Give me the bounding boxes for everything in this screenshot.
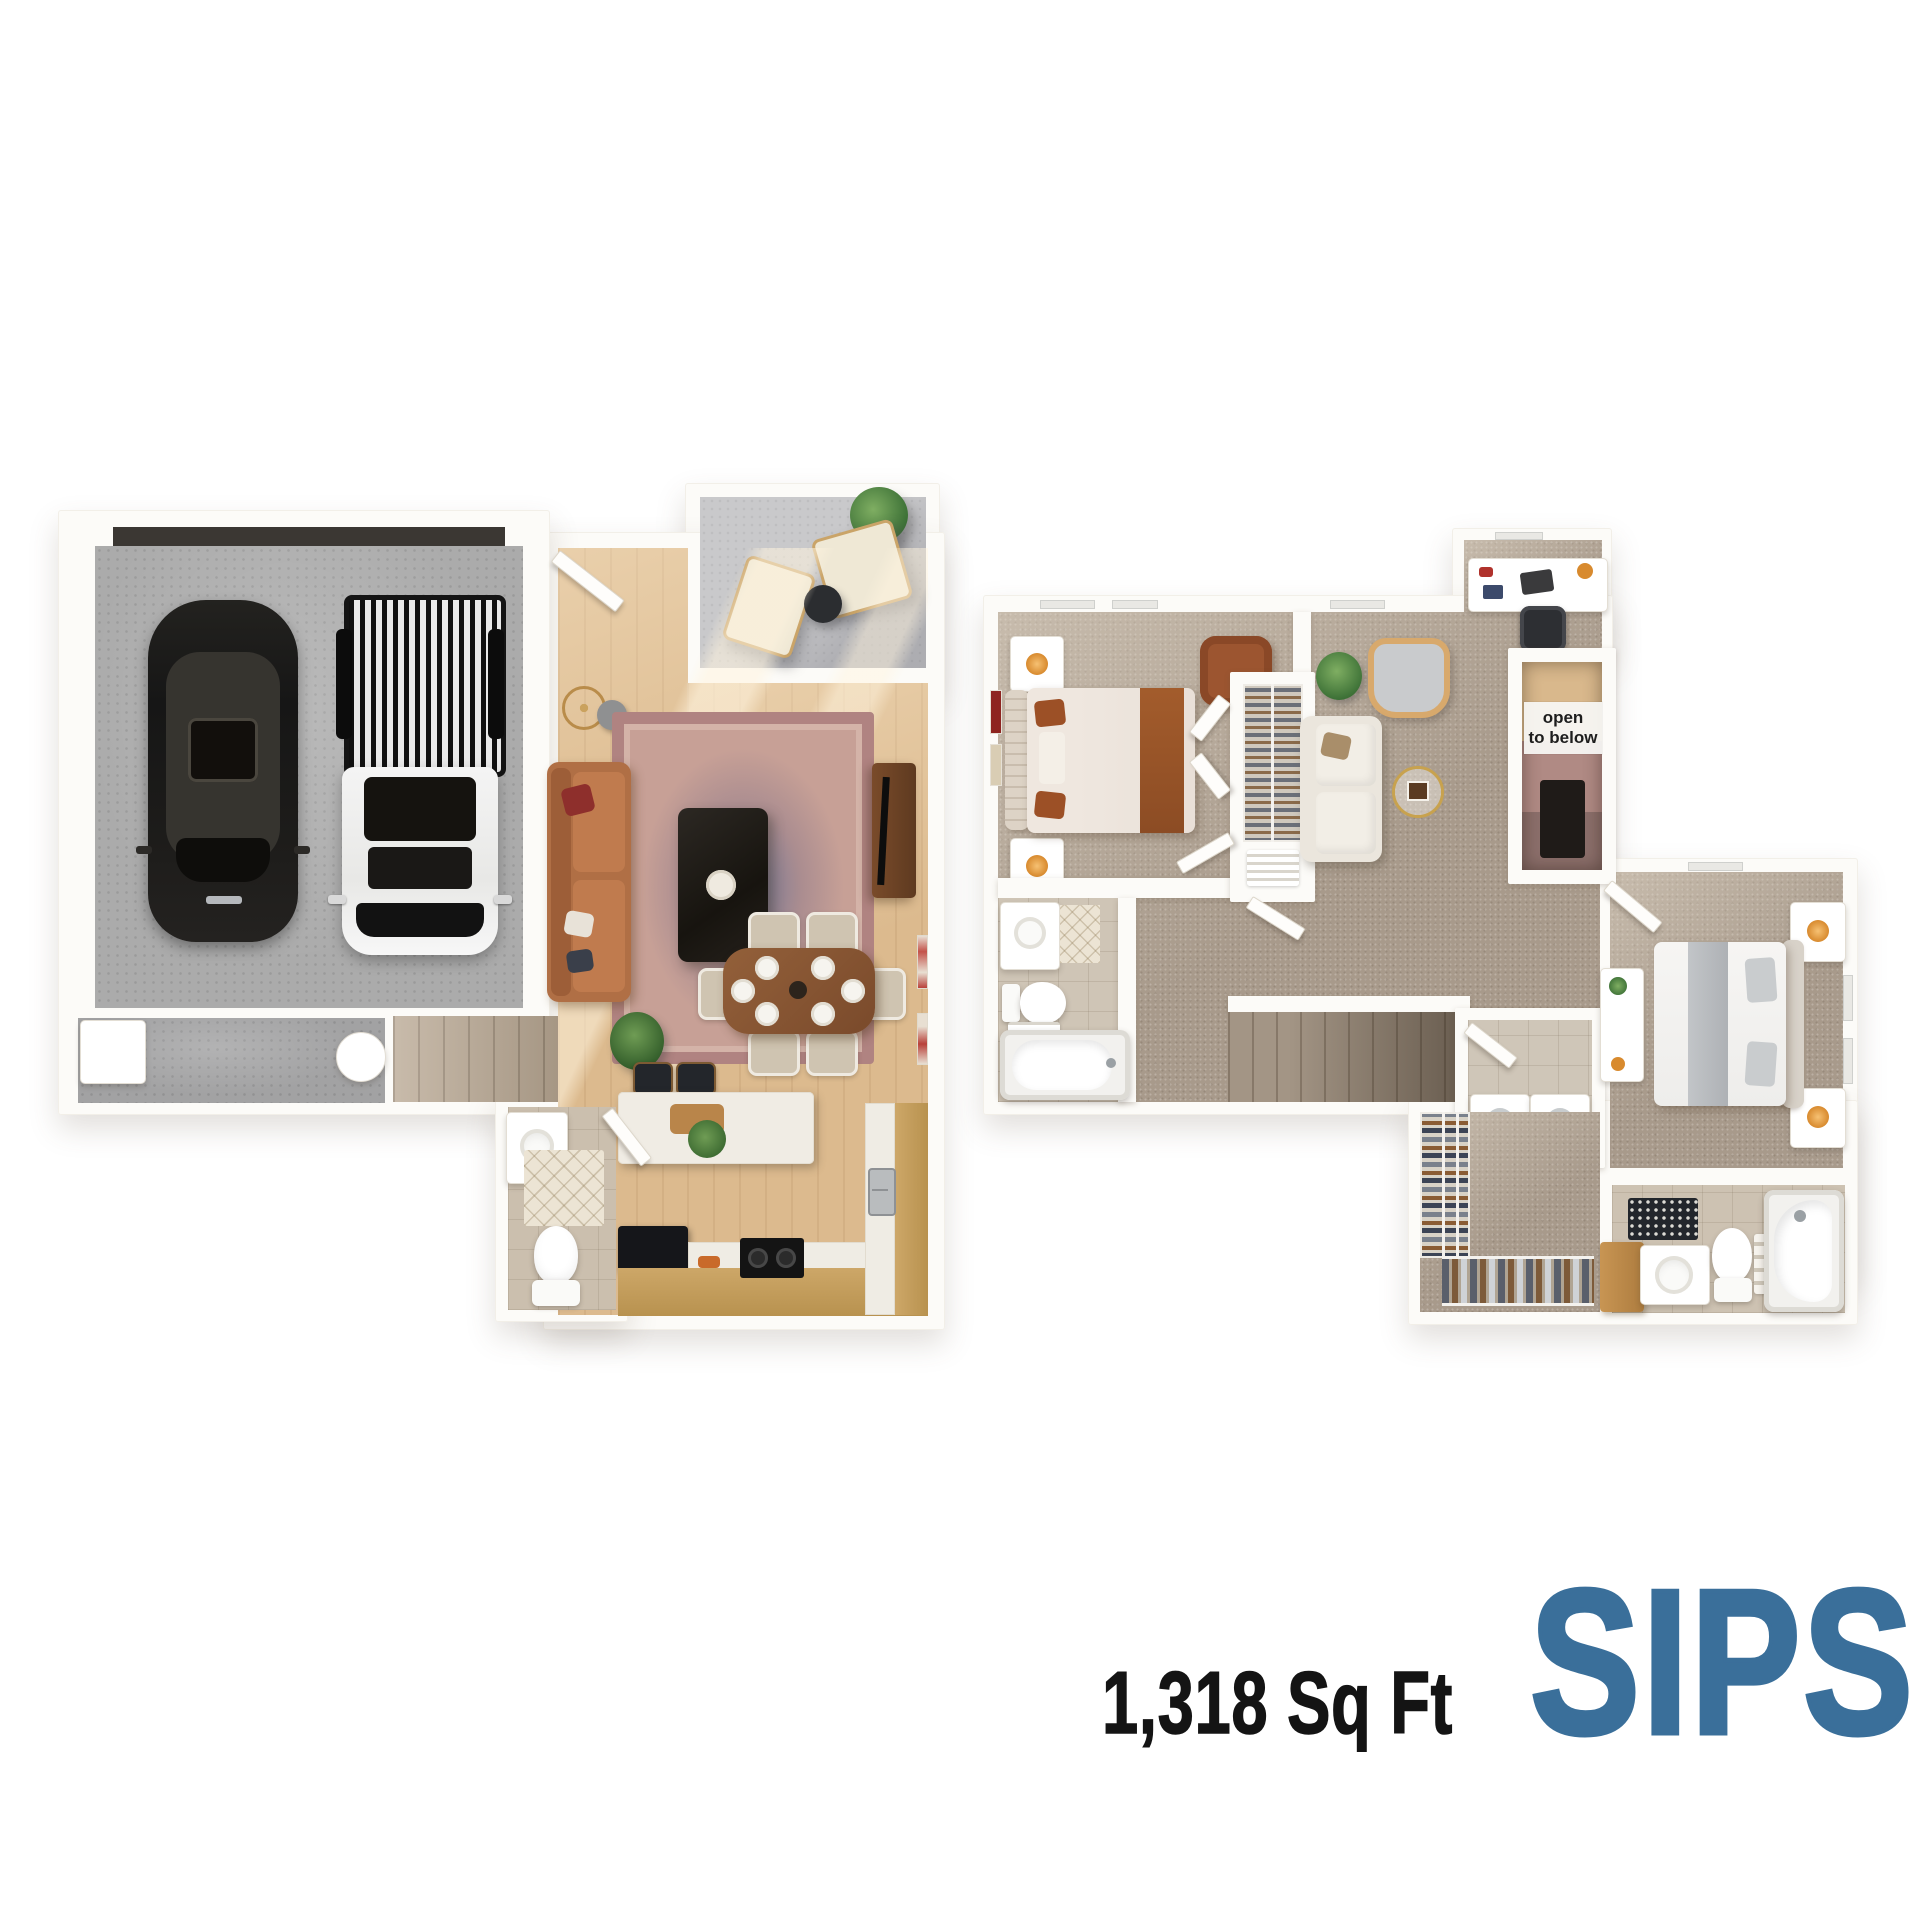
bathroom2-toilet-tank (1714, 1278, 1752, 1302)
lamp-2a (1807, 920, 1829, 942)
patio-side-table (804, 585, 842, 623)
bed2-pillow-2 (1745, 1041, 1778, 1087)
bed-1 (1005, 688, 1195, 833)
place-setting-1 (755, 956, 779, 980)
desk-lamp (1577, 563, 1593, 579)
black-car-sunroof (188, 718, 258, 782)
floorplan-page: open to below (0, 0, 1920, 1920)
desk-red-item (1479, 567, 1493, 577)
island-stool-2 (676, 1062, 716, 1096)
refrigerator (618, 1226, 688, 1272)
place-setting-2 (811, 956, 835, 980)
bathroom2-toilet-bowl (1712, 1228, 1752, 1282)
bed1-runner (1140, 688, 1184, 833)
dining-table (723, 948, 875, 1034)
truck-rear-glass (368, 847, 472, 889)
island-greens (688, 1120, 726, 1158)
black-car (148, 600, 298, 942)
bed2-pillow-1 (1745, 957, 1778, 1003)
bedroom1-wall-art-2 (990, 744, 1002, 786)
table-centerpiece (789, 981, 807, 999)
rattan-chair (1368, 638, 1450, 718)
loft-sofa (1300, 716, 1382, 862)
void-view-coffee-table (1540, 780, 1585, 858)
dark-throw-pillow (566, 948, 595, 973)
bed2-runner (1688, 942, 1728, 1106)
powder-toilet-bowl (534, 1226, 578, 1284)
place-setting-6 (841, 979, 865, 1003)
plan-name-text: SIPS (1530, 1570, 1915, 1755)
powder-toilet-tank (532, 1280, 580, 1306)
loft-gold-table (1392, 766, 1444, 818)
bed1-pillow-3 (1039, 732, 1065, 784)
black-car-windshield (176, 838, 270, 882)
kitchen-decor-orange (698, 1256, 720, 1268)
plan-title-row: 1,318 Sq Ft SIPS (1102, 1570, 1920, 1755)
truck-mirror-right (494, 895, 512, 904)
bathroom2-vanity-wood (1600, 1242, 1644, 1312)
black-car-mirror-left (136, 846, 152, 854)
loft-plant (1316, 652, 1362, 700)
bed-2 (1654, 940, 1804, 1108)
bedroom1-bottom-wall (998, 878, 1238, 898)
closet1-rod (1271, 684, 1274, 842)
bed1-pillow-2 (1034, 791, 1067, 820)
garage-door (113, 527, 505, 546)
walkin-shoe-rack (1442, 1256, 1594, 1306)
lamp-2b (1807, 1106, 1829, 1128)
powder-bath-mat (524, 1150, 604, 1226)
bathroom1-vanity (1000, 902, 1060, 970)
open-to-below-line1: open (1543, 708, 1584, 728)
stairs-second-floor (1228, 1012, 1470, 1102)
truck-sunroof (364, 777, 476, 841)
island-stool-1 (633, 1062, 673, 1096)
kitchen-sink (868, 1168, 896, 1216)
dresser-decor (1611, 1057, 1625, 1071)
truck-wheel-left (336, 629, 352, 739)
black-car-mirror-right (294, 846, 310, 854)
bathroom1-tub (1000, 1030, 1130, 1100)
bathroom2-mat (1628, 1198, 1698, 1240)
void-opening (1522, 662, 1602, 870)
walkin-rod-1 (1442, 1112, 1445, 1258)
closet1-towels (1247, 850, 1299, 886)
stove-burner-2 (776, 1248, 796, 1268)
white-throw-pillow (563, 910, 595, 938)
sink-divider (872, 1189, 888, 1191)
desk-laptop (1520, 569, 1555, 595)
wall-art-2 (917, 1013, 928, 1065)
tv-screen (877, 777, 890, 885)
desk-notebook (1483, 585, 1503, 599)
lamp-1a (1026, 653, 1048, 675)
bathroom2-shower-drain (1794, 1210, 1806, 1222)
place-setting-4 (811, 1002, 835, 1026)
bathroom2-vanity-counter (1640, 1245, 1710, 1305)
loft-table-book (1407, 781, 1429, 801)
stove (740, 1238, 804, 1278)
place-setting-5 (731, 979, 755, 1003)
loft-sofa-seat-2 (1316, 792, 1376, 854)
desk (1468, 558, 1608, 612)
bathroom2-sink (1655, 1256, 1693, 1294)
truck-bed-cover (344, 595, 506, 777)
square-footage-text: 1,318 Sq Ft (1102, 1652, 1453, 1754)
wall-art-1 (917, 935, 928, 989)
dining-chair-4 (806, 1030, 858, 1076)
coffee-table-tray (706, 870, 736, 900)
dresser-plant (1609, 977, 1627, 995)
stair-railing (1228, 996, 1470, 1012)
walkin-hanging-clothes (1420, 1112, 1470, 1258)
open-to-below-line2: to below (1529, 728, 1598, 748)
bathroom1-sink (1014, 917, 1046, 949)
open-to-below-label: open to below (1524, 702, 1602, 754)
utility-cabinet (80, 1020, 146, 1084)
leather-sofa (547, 762, 631, 1002)
kitchen-cabinets-right (895, 1103, 928, 1315)
bathroom2-tub (1764, 1190, 1844, 1312)
bedroom1-wall-art-1 (990, 690, 1002, 734)
black-car-hood-glint (206, 896, 242, 904)
truck-wheel-right (488, 629, 504, 739)
water-heater (336, 1032, 386, 1082)
bathroom1-tub-basin (1012, 1040, 1112, 1090)
walkin-rod-2 (1456, 1112, 1459, 1258)
bathroom1-mat (1060, 905, 1100, 963)
nook-window (1495, 532, 1543, 540)
bed1-headboard (1005, 690, 1029, 830)
bedroom2-dresser (1600, 968, 1644, 1082)
nightstand-1a (1010, 636, 1064, 692)
stove-burner-1 (748, 1248, 768, 1268)
loft-window (1330, 600, 1385, 609)
bedroom2-window-top (1688, 862, 1743, 871)
office-chair (1520, 606, 1566, 652)
tv-console (872, 763, 916, 898)
closet1-hanging-clothes (1243, 684, 1303, 842)
bathroom1-tub-drain (1106, 1058, 1116, 1068)
place-setting-3 (755, 1002, 779, 1026)
lamp-1b (1026, 855, 1048, 877)
bed1-pillow-1 (1034, 699, 1067, 728)
dining-chair-3 (748, 1030, 800, 1076)
bathroom1-toilet-tank (1002, 984, 1020, 1022)
bathroom1-toilet-bowl (1020, 982, 1066, 1024)
bedroom1-window-1 (1040, 600, 1095, 609)
bedroom1-window-2 (1112, 600, 1158, 609)
white-truck (342, 595, 498, 955)
truck-mirror-left (328, 895, 346, 904)
bedroom2-window-right-1 (1843, 975, 1853, 1021)
bedroom2-window-right-2 (1843, 1038, 1853, 1084)
truck-windshield (356, 903, 484, 937)
